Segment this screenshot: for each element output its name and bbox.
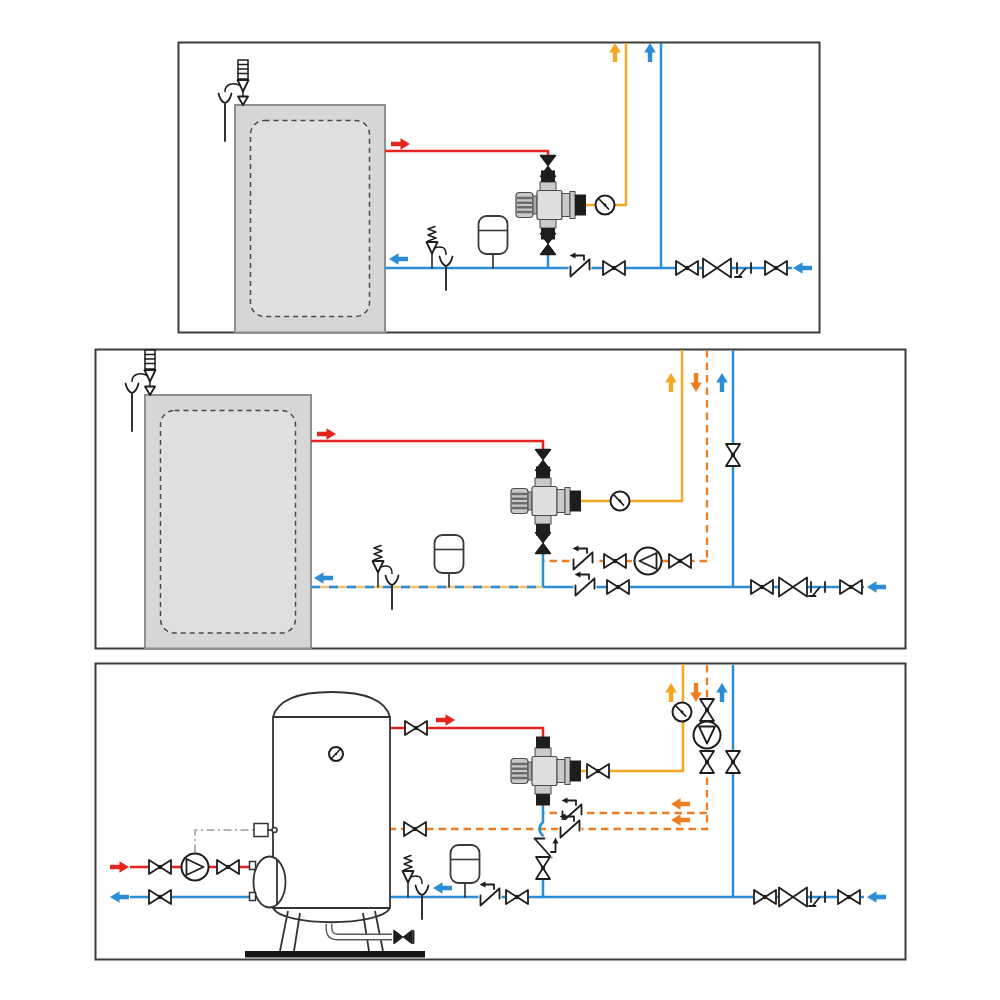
ball-valve-icon [148,859,172,876]
ball-valve-icon [403,821,427,838]
ball-valve-icon [603,553,627,570]
ball-valve-icon [764,260,788,277]
primary-pump-icon [182,854,209,881]
ball-valve-icon [750,579,774,596]
riser-shutoff-valve-icon [725,750,742,774]
schematic-page [0,0,1000,1000]
ball-valve-icon [839,579,863,596]
tank-drain-valve-icon [393,930,413,945]
ball-valve-icon [602,260,626,277]
flange-tab [250,862,256,870]
thermometer-icon [329,747,343,761]
shutoff-valve-icon [535,856,552,880]
ball-valve-icon [606,579,630,596]
panel-3-frame [96,664,906,960]
ball-valve-icon [505,889,529,906]
riser-shutoff-valve-icon [699,698,716,722]
ball-valve-icon [668,553,692,570]
ball-valve-icon [753,889,777,906]
schematic-canvas [0,0,1000,1000]
panel-2 [96,350,906,649]
riser-shutoff-valve-icon [699,750,716,774]
recirculation-pump-icon [694,722,721,749]
temperature-gauge-icon [596,196,615,215]
main-shutoff-valve-icon [778,577,808,597]
temperature-gauge-icon [673,703,692,722]
shutoff-valve-icon [404,720,428,737]
ball-valve-icon [216,859,240,876]
ball-valve-icon [148,889,172,906]
manway-flange [254,857,286,908]
main-shutoff-valve-icon [702,258,732,278]
temperature-gauge-icon [611,492,630,511]
ball-valve-icon [586,763,610,780]
flange-tab [250,893,256,901]
ball-valve-icon [837,889,861,906]
panel-3 [96,664,906,960]
main-shutoff-valve-icon [778,887,808,907]
recirculation-pump-icon [635,548,662,575]
riser-shutoff-valve-icon [725,443,742,467]
storage-water-heater [235,105,385,333]
storage-water-heater [145,395,311,649]
tank-base [245,951,425,958]
panel-1 [179,43,820,333]
ball-valve-icon [675,260,699,277]
